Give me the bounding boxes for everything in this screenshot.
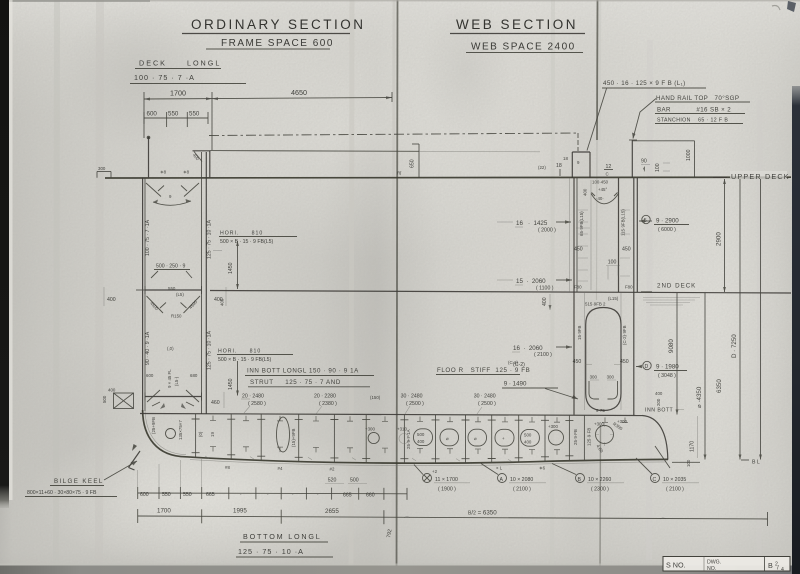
svg-text:FRAME SPACE 600: FRAME SPACE 600 [221, 38, 334, 49]
svg-text:( 2300 ): ( 2300 ) [591, 487, 609, 493]
svg-text:115·9FB(L15): 115·9FB(L15) [621, 209, 626, 236]
svg-text:∗6: ∗6 [539, 466, 546, 471]
svg-text:S NO.: S NO. [666, 561, 686, 570]
svg-text:600: 600 [146, 373, 154, 378]
svg-text:550: 550 [168, 111, 179, 118]
svg-text:F80: F80 [574, 285, 582, 290]
svg-text:(0): (0) [198, 431, 203, 437]
svg-text:·: · [267, 492, 269, 498]
svg-text:500 · 250 · 9: 500 · 250 · 9 [156, 264, 186, 270]
svg-text:520: 520 [328, 478, 337, 484]
svg-text:2900: 2900 [716, 232, 723, 246]
svg-text:( 2580 ): ( 2580 ) [248, 401, 266, 407]
svg-text:500: 500 [350, 478, 359, 484]
svg-text:WEB SECTION: WEB SECTION [456, 17, 578, 32]
svg-text:FLOO R STIFF 125 · 9 FB: FLOO R STIFF 125 · 9 FB [437, 367, 530, 374]
svg-text:C: C [653, 477, 657, 483]
svg-text:125 · 75 · 10 ·1A: 125 · 75 · 10 ·1A [207, 331, 213, 370]
svg-text:550: 550 [168, 286, 176, 291]
svg-text:⌀: ⌀ [446, 436, 449, 441]
svg-text:450: 450 [574, 247, 583, 253]
svg-text:D · 7250: D · 7250 [731, 334, 738, 358]
svg-text:125·9·FB: 125·9·FB [587, 428, 592, 446]
svg-text:( 2500 ): ( 2500 ) [478, 401, 496, 407]
svg-text:+300: +300 [548, 424, 558, 429]
svg-text:800×11+60 · 30×80×75 · 9 FB: 800×11+60 · 30×80×75 · 9 FB [27, 490, 97, 496]
svg-text:STANCHION 65 · 12 F B: STANCHION 65 · 12 F B [657, 118, 728, 124]
svg-text:90: 90 [641, 159, 647, 165]
svg-text:65·9FB(L15): 65·9FB(L15) [579, 211, 584, 236]
svg-text:20 · 2480: 20 · 2480 [242, 394, 264, 400]
svg-text:( 1900 ): ( 1900 ) [438, 487, 456, 493]
svg-text:( 3048 ): ( 3048 ) [658, 373, 676, 379]
svg-text:#8: #8 [225, 465, 230, 470]
svg-text:100 · 75 · 7 ·A: 100 · 75 · 7 ·A [134, 73, 195, 82]
svg-text:(L5): (L5) [176, 292, 184, 297]
svg-text:550: 550 [162, 492, 171, 498]
svg-text:100: 100 [655, 163, 661, 172]
svg-text:100 · 75 · 7 ·1A: 100 · 75 · 7 ·1A [145, 219, 151, 256]
svg-text:20 · 2280: 20 · 2280 [314, 394, 336, 400]
svg-text:4: 4 [781, 567, 784, 573]
svg-text:HAND RAIL TOP 70°SGP: HAND RAIL TOP 70°SGP [656, 95, 739, 102]
svg-text:C: C [606, 172, 609, 177]
svg-text:300: 300 [98, 166, 106, 171]
svg-text:NO.: NO. [707, 566, 716, 572]
svg-text:600: 600 [140, 492, 149, 498]
svg-text:400: 400 [583, 188, 588, 196]
svg-text:11 × 1700: 11 × 1700 [435, 477, 458, 483]
svg-text:WEB SPACE 2400: WEB SPACE 2400 [471, 42, 576, 53]
svg-text:1450: 1450 [228, 262, 234, 274]
svg-text:100: 100 [686, 459, 691, 467]
svg-text:⌀: ⌀ [474, 436, 477, 441]
svg-text:25·9·FB: 25·9·FB [573, 429, 578, 445]
svg-text:400: 400 [542, 297, 548, 306]
svg-text:125 · 75 · 10 ·1A: 125 · 75 · 10 ·1A [207, 220, 213, 259]
svg-text:400: 400 [655, 391, 663, 396]
svg-text:DECK LONGL: DECK LONGL [139, 59, 221, 68]
svg-text:∗8: ∗8 [183, 170, 190, 175]
svg-text:R⌈: R⌈ [397, 171, 402, 176]
svg-text:(L5·): (L5·) [174, 376, 179, 386]
svg-text:⌀ ·4350: ⌀ ·4350 [696, 386, 703, 408]
svg-text:R150: R150 [171, 314, 182, 319]
svg-text:1700: 1700 [157, 508, 171, 515]
svg-text:∗8: ∗8 [160, 170, 167, 175]
svg-text:BAR #16 SB × 2: BAR #16 SB × 2 [657, 107, 731, 114]
svg-text:#4: #4 [278, 466, 283, 471]
svg-text:90 · 40 · 9 ·1A: 90 · 40 · 9 ·1A [145, 331, 151, 365]
svg-text:·: · [317, 492, 319, 498]
svg-text:+300: +300 [365, 427, 375, 432]
svg-text:1700: 1700 [170, 89, 186, 98]
svg-text:450: 450 [573, 359, 582, 365]
svg-text:( 2000 ): ( 2000 ) [538, 228, 556, 234]
svg-text:(15)+9FB: (15)+9FB [291, 429, 296, 447]
svg-text:400: 400 [108, 388, 116, 393]
svg-text:DWG.: DWG. [707, 560, 721, 566]
svg-text:400: 400 [417, 439, 425, 444]
svg-text:ORDINARY SECTION: ORDINARY SECTION [191, 17, 366, 32]
svg-text:400: 400 [107, 297, 116, 303]
svg-text:9 · 1980: 9 · 1980 [656, 364, 679, 371]
svg-text:100: 100 [608, 260, 617, 266]
svg-text:(22): (22) [538, 165, 546, 170]
svg-text:(C-2): (C-2) [513, 362, 525, 368]
svg-text:650: 650 [410, 159, 416, 168]
svg-text:BOTTOM LONGL: BOTTOM LONGL [243, 532, 322, 541]
svg-text:(L15): (L15) [608, 296, 619, 301]
svg-text:·: · [292, 492, 294, 498]
svg-text:+2: +2 [432, 469, 438, 474]
svg-text:30 · 2480: 30 · 2480 [401, 394, 423, 400]
svg-text:680: 680 [190, 373, 198, 378]
svg-text:600: 600 [147, 111, 158, 118]
svg-text:9 · 1490: 9 · 1490 [504, 381, 527, 388]
svg-text:550: 550 [183, 492, 192, 498]
svg-text:500 × B · 15 · 9 FB(L5): 500 × B · 15 · 9 FB(L5) [220, 239, 273, 245]
svg-text:15 · 2060: 15 · 2060 [516, 278, 546, 285]
svg-text:HORI. 810: HORI. 810 [220, 231, 263, 237]
svg-text:B: B [578, 477, 582, 483]
svg-text:660: 660 [366, 493, 375, 499]
svg-text:500: 500 [524, 433, 532, 438]
svg-text:( 2100 ): ( 2100 ) [513, 487, 531, 493]
svg-text:9 × 45 FL: 9 × 45 FL [167, 369, 172, 388]
svg-text:F80: F80 [625, 285, 633, 290]
svg-text:550: 550 [189, 111, 200, 118]
svg-text:BILGE KEEL: BILGE KEEL [54, 478, 104, 485]
svg-text:·: · [240, 492, 242, 498]
svg-text:515·9FB 2: 515·9FB 2 [585, 302, 606, 307]
svg-text:B: B [768, 561, 773, 570]
svg-text:200: 200 [656, 398, 661, 406]
svg-text:1000: 1000 [686, 149, 692, 161]
svg-text:+300: +300 [617, 419, 627, 424]
svg-text:450 · 16 · 125 × 9 F B (L₁): 450 · 16 · 125 × 9 F B (L₁) [603, 80, 686, 87]
svg-text:30 · 2480: 30 · 2480 [474, 394, 496, 400]
svg-text:/: / [777, 565, 779, 572]
svg-text:450: 450 [622, 247, 631, 253]
svg-text:665: 665 [206, 492, 215, 498]
svg-text:300: 300 [607, 375, 615, 380]
svg-text:( 6000 ): ( 6000 ) [658, 227, 676, 233]
svg-text:( 2100 ): ( 2100 ) [534, 352, 552, 358]
svg-text:460: 460 [211, 400, 220, 406]
svg-text:500 × B · 15 · 9 FB(L5): 500 × B · 15 · 9 FB(L5) [218, 357, 271, 363]
svg-text:100·450: 100·450 [592, 180, 609, 185]
svg-text:(25+9FB: (25+9FB [151, 417, 156, 434]
svg-text:9·75: 9·75 [596, 408, 605, 413]
svg-text:400: 400 [524, 440, 532, 445]
svg-text:1170: 1170 [690, 441, 696, 452]
svg-text:(150): (150) [370, 395, 381, 400]
svg-text:4650: 4650 [291, 88, 307, 97]
svg-text:18: 18 [556, 163, 562, 169]
svg-text:18: 18 [563, 156, 568, 161]
svg-text:(C-2)·9FB: (C-2)·9FB [622, 325, 627, 345]
svg-text:2655: 2655 [325, 508, 339, 515]
svg-text:300: 300 [590, 375, 598, 380]
svg-text:( 1100 ): ( 1100 ) [536, 286, 554, 292]
svg-text:9 · 2900: 9 · 2900 [656, 218, 679, 225]
svg-text:400: 400 [220, 298, 225, 306]
svg-text:+: + [502, 436, 505, 441]
svg-text:× L: × L [496, 466, 503, 471]
svg-text:450: 450 [620, 359, 629, 365]
svg-text:B/2 = 6350: B/2 = 6350 [468, 510, 497, 517]
svg-text:INN BOTT LONGL 150 · 90 · 9: INN BOTT LONGL 150 · 90 · 9 1A [247, 368, 359, 375]
svg-text:10 × 2035: 10 × 2035 [663, 477, 686, 483]
svg-text:( 2100 ): ( 2100 ) [666, 487, 684, 493]
svg-text:HORI. 810: HORI. 810 [218, 349, 261, 355]
svg-text:10 × 2260: 10 × 2260 [588, 477, 611, 483]
svg-text:500: 500 [102, 395, 107, 403]
svg-text:A: A [500, 477, 504, 483]
svg-text:#2: #2 [330, 467, 335, 472]
svg-text:125 · 75 · 10 ·A: 125 · 75 · 10 ·A [238, 547, 304, 556]
svg-text:( 2500 ): ( 2500 ) [406, 401, 424, 407]
svg-text:25·9·7·1A: 25·9·7·1A [406, 429, 411, 449]
svg-text:135×75×7: 135×75×7 [178, 420, 183, 440]
svg-text:2ND DECK: 2ND DECK [657, 283, 696, 290]
svg-text:1995: 1995 [233, 508, 247, 515]
svg-text:B L: B L [752, 460, 760, 466]
svg-text:·40·: ·40· [596, 196, 604, 201]
svg-text:INN BOTT: INN BOTT [645, 408, 674, 414]
svg-text:16 · 1425: 16 · 1425 [516, 220, 548, 227]
svg-text:15·9FB: 15·9FB [577, 326, 582, 340]
svg-text:+300: +300 [594, 422, 604, 427]
svg-text:500: 500 [417, 432, 425, 437]
svg-text:665: 665 [343, 493, 352, 499]
svg-text:D: D [645, 364, 649, 370]
svg-text:+45°: +45° [598, 187, 607, 192]
svg-text:1450: 1450 [228, 378, 234, 390]
svg-text:6350: 6350 [716, 379, 723, 393]
svg-text:STRUT 125 · 75 · 7 AND: STRUT 125 · 75 · 7 AND [250, 379, 341, 386]
svg-text:10 × 2080: 10 × 2080 [510, 477, 533, 483]
svg-text:9080: 9080 [668, 339, 675, 353]
svg-text:16 · 2060: 16 · 2060 [513, 345, 543, 352]
svg-text:(,0): (,0) [167, 346, 174, 351]
svg-text:19: 19 [210, 432, 215, 437]
